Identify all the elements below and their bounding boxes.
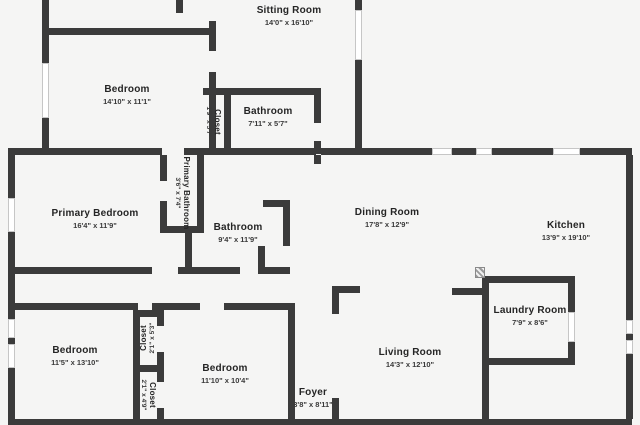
wall-segment — [178, 267, 240, 274]
wall-segment — [203, 88, 321, 95]
window-marker — [626, 340, 633, 354]
room-dimensions: 13'9" x 19'10" — [542, 233, 590, 242]
door-marker — [475, 267, 485, 278]
room-name: Primary Bedroom — [52, 208, 139, 221]
wall-segment — [321, 148, 432, 155]
room-dimensions: 2'1" x 4'9" — [139, 380, 147, 411]
room-label-bedroom: Bedroom11'10" x 10'4" — [201, 363, 249, 385]
wall-segment — [157, 352, 164, 365]
room-label-laundry-room: Laundry Room7'9" x 8'6" — [494, 305, 567, 327]
wall-segment — [157, 310, 164, 326]
room-label-bathroom: Bathroom9'4" x 11'9" — [214, 222, 263, 244]
wall-segment — [626, 155, 633, 320]
floor-plan: Sitting Room14'0" x 16'10"Bedroom14'10" … — [0, 0, 640, 425]
wall-segment — [42, 35, 49, 65]
wall-segment — [492, 148, 553, 155]
window-marker — [432, 148, 452, 155]
wall-segment — [626, 354, 633, 419]
wall-segment — [489, 358, 575, 365]
room-name: Closet — [139, 323, 149, 354]
wall-segment — [8, 267, 152, 274]
wall-segment — [8, 368, 15, 419]
room-name: Closet — [147, 380, 157, 411]
room-name: Bathroom — [214, 222, 263, 235]
room-label-closet: Closet1'9" x 5'7" — [204, 107, 222, 138]
room-dimensions: 11'5" x 13'10" — [51, 358, 99, 367]
wall-segment — [133, 365, 164, 372]
room-dimensions: 11'10" x 10'4" — [201, 376, 249, 385]
wall-segment — [42, 28, 216, 35]
wall-segment — [157, 408, 164, 419]
room-label-bedroom: Bedroom14'10" x 11'1" — [103, 84, 151, 106]
room-label-living-room: Living Room14'3" x 12'10" — [379, 347, 442, 369]
wall-segment — [262, 267, 290, 274]
window-marker — [553, 148, 580, 155]
room-name: Closet — [212, 107, 222, 138]
wall-segment — [332, 286, 360, 293]
room-dimensions: 2'1" x 5'3" — [149, 323, 157, 354]
window-marker — [355, 10, 362, 60]
room-name: Bedroom — [201, 363, 249, 376]
window-marker — [476, 148, 492, 155]
wall-segment — [224, 303, 295, 310]
room-dimensions: 1'9" x 5'7" — [204, 107, 212, 138]
window-marker — [8, 198, 15, 232]
room-name: Primary Bathroom — [181, 157, 191, 230]
room-dimensions: 7'9" x 8'6" — [494, 318, 567, 327]
window-marker — [42, 63, 49, 118]
wall-segment — [8, 148, 162, 155]
room-name: Bedroom — [51, 345, 99, 358]
wall-segment — [258, 246, 265, 274]
room-dimensions: 9'4" x 11'9" — [214, 235, 263, 244]
wall-segment — [8, 155, 15, 198]
wall-segment — [160, 155, 167, 181]
room-label-sitting-room: Sitting Room14'0" x 16'10" — [257, 5, 322, 27]
room-name: Living Room — [379, 347, 442, 360]
room-label-bedroom: Bedroom11'5" x 13'10" — [51, 345, 99, 367]
wall-segment — [8, 419, 632, 425]
wall-segment — [8, 303, 138, 310]
wall-segment — [224, 95, 231, 152]
window-marker — [568, 312, 575, 342]
room-name: Foyer — [293, 387, 332, 400]
wall-segment — [482, 276, 489, 419]
wall-segment — [332, 398, 339, 419]
room-label-foyer: Foyer3'8" x 8'11" — [293, 387, 332, 409]
room-label-closet: Closet2'1" x 4'9" — [139, 380, 157, 411]
room-label-bathroom: Bathroom7'11" x 5'7" — [244, 106, 293, 128]
room-dimensions: 7'11" x 5'7" — [244, 119, 293, 128]
room-label-kitchen: Kitchen13'9" x 19'10" — [542, 220, 590, 242]
room-label-closet: Closet2'1" x 5'3" — [139, 323, 157, 354]
room-label-dining-room: Dining Room17'8" x 12'9" — [355, 207, 419, 229]
wall-segment — [568, 283, 575, 312]
wall-segment — [209, 21, 216, 51]
room-name: Bathroom — [244, 106, 293, 119]
room-dimensions: 3'6" x 7'4" — [173, 157, 181, 230]
room-dimensions: 14'0" x 16'10" — [257, 18, 322, 27]
window-marker — [626, 320, 633, 334]
wall-segment — [176, 0, 183, 13]
room-name: Laundry Room — [494, 305, 567, 318]
wall-segment — [489, 276, 575, 283]
room-name: Dining Room — [355, 207, 419, 220]
room-label-primary-bathroom: Primary Bathroom3'6" x 7'4" — [173, 157, 191, 230]
wall-segment — [355, 0, 362, 10]
wall-segment — [314, 155, 321, 164]
wall-segment — [157, 372, 164, 382]
window-marker — [8, 319, 15, 338]
wall-segment — [580, 148, 632, 155]
room-name: Bedroom — [103, 84, 151, 97]
wall-segment — [314, 95, 321, 123]
room-label-primary-bedroom: Primary Bedroom16'4" x 11'9" — [52, 208, 139, 230]
wall-segment — [452, 148, 476, 155]
room-name: Kitchen — [542, 220, 590, 233]
wall-segment — [152, 303, 200, 310]
room-dimensions: 16'4" x 11'9" — [52, 221, 139, 230]
window-marker — [8, 344, 15, 368]
room-dimensions: 17'8" x 12'9" — [355, 220, 419, 229]
wall-segment — [197, 155, 204, 233]
wall-segment — [184, 148, 316, 155]
room-dimensions: 14'10" x 11'1" — [103, 97, 151, 106]
room-name: Sitting Room — [257, 5, 322, 18]
room-dimensions: 14'3" x 12'10" — [379, 360, 442, 369]
wall-segment — [355, 60, 362, 154]
room-dimensions: 3'8" x 8'11" — [293, 400, 332, 409]
wall-segment — [283, 200, 290, 246]
